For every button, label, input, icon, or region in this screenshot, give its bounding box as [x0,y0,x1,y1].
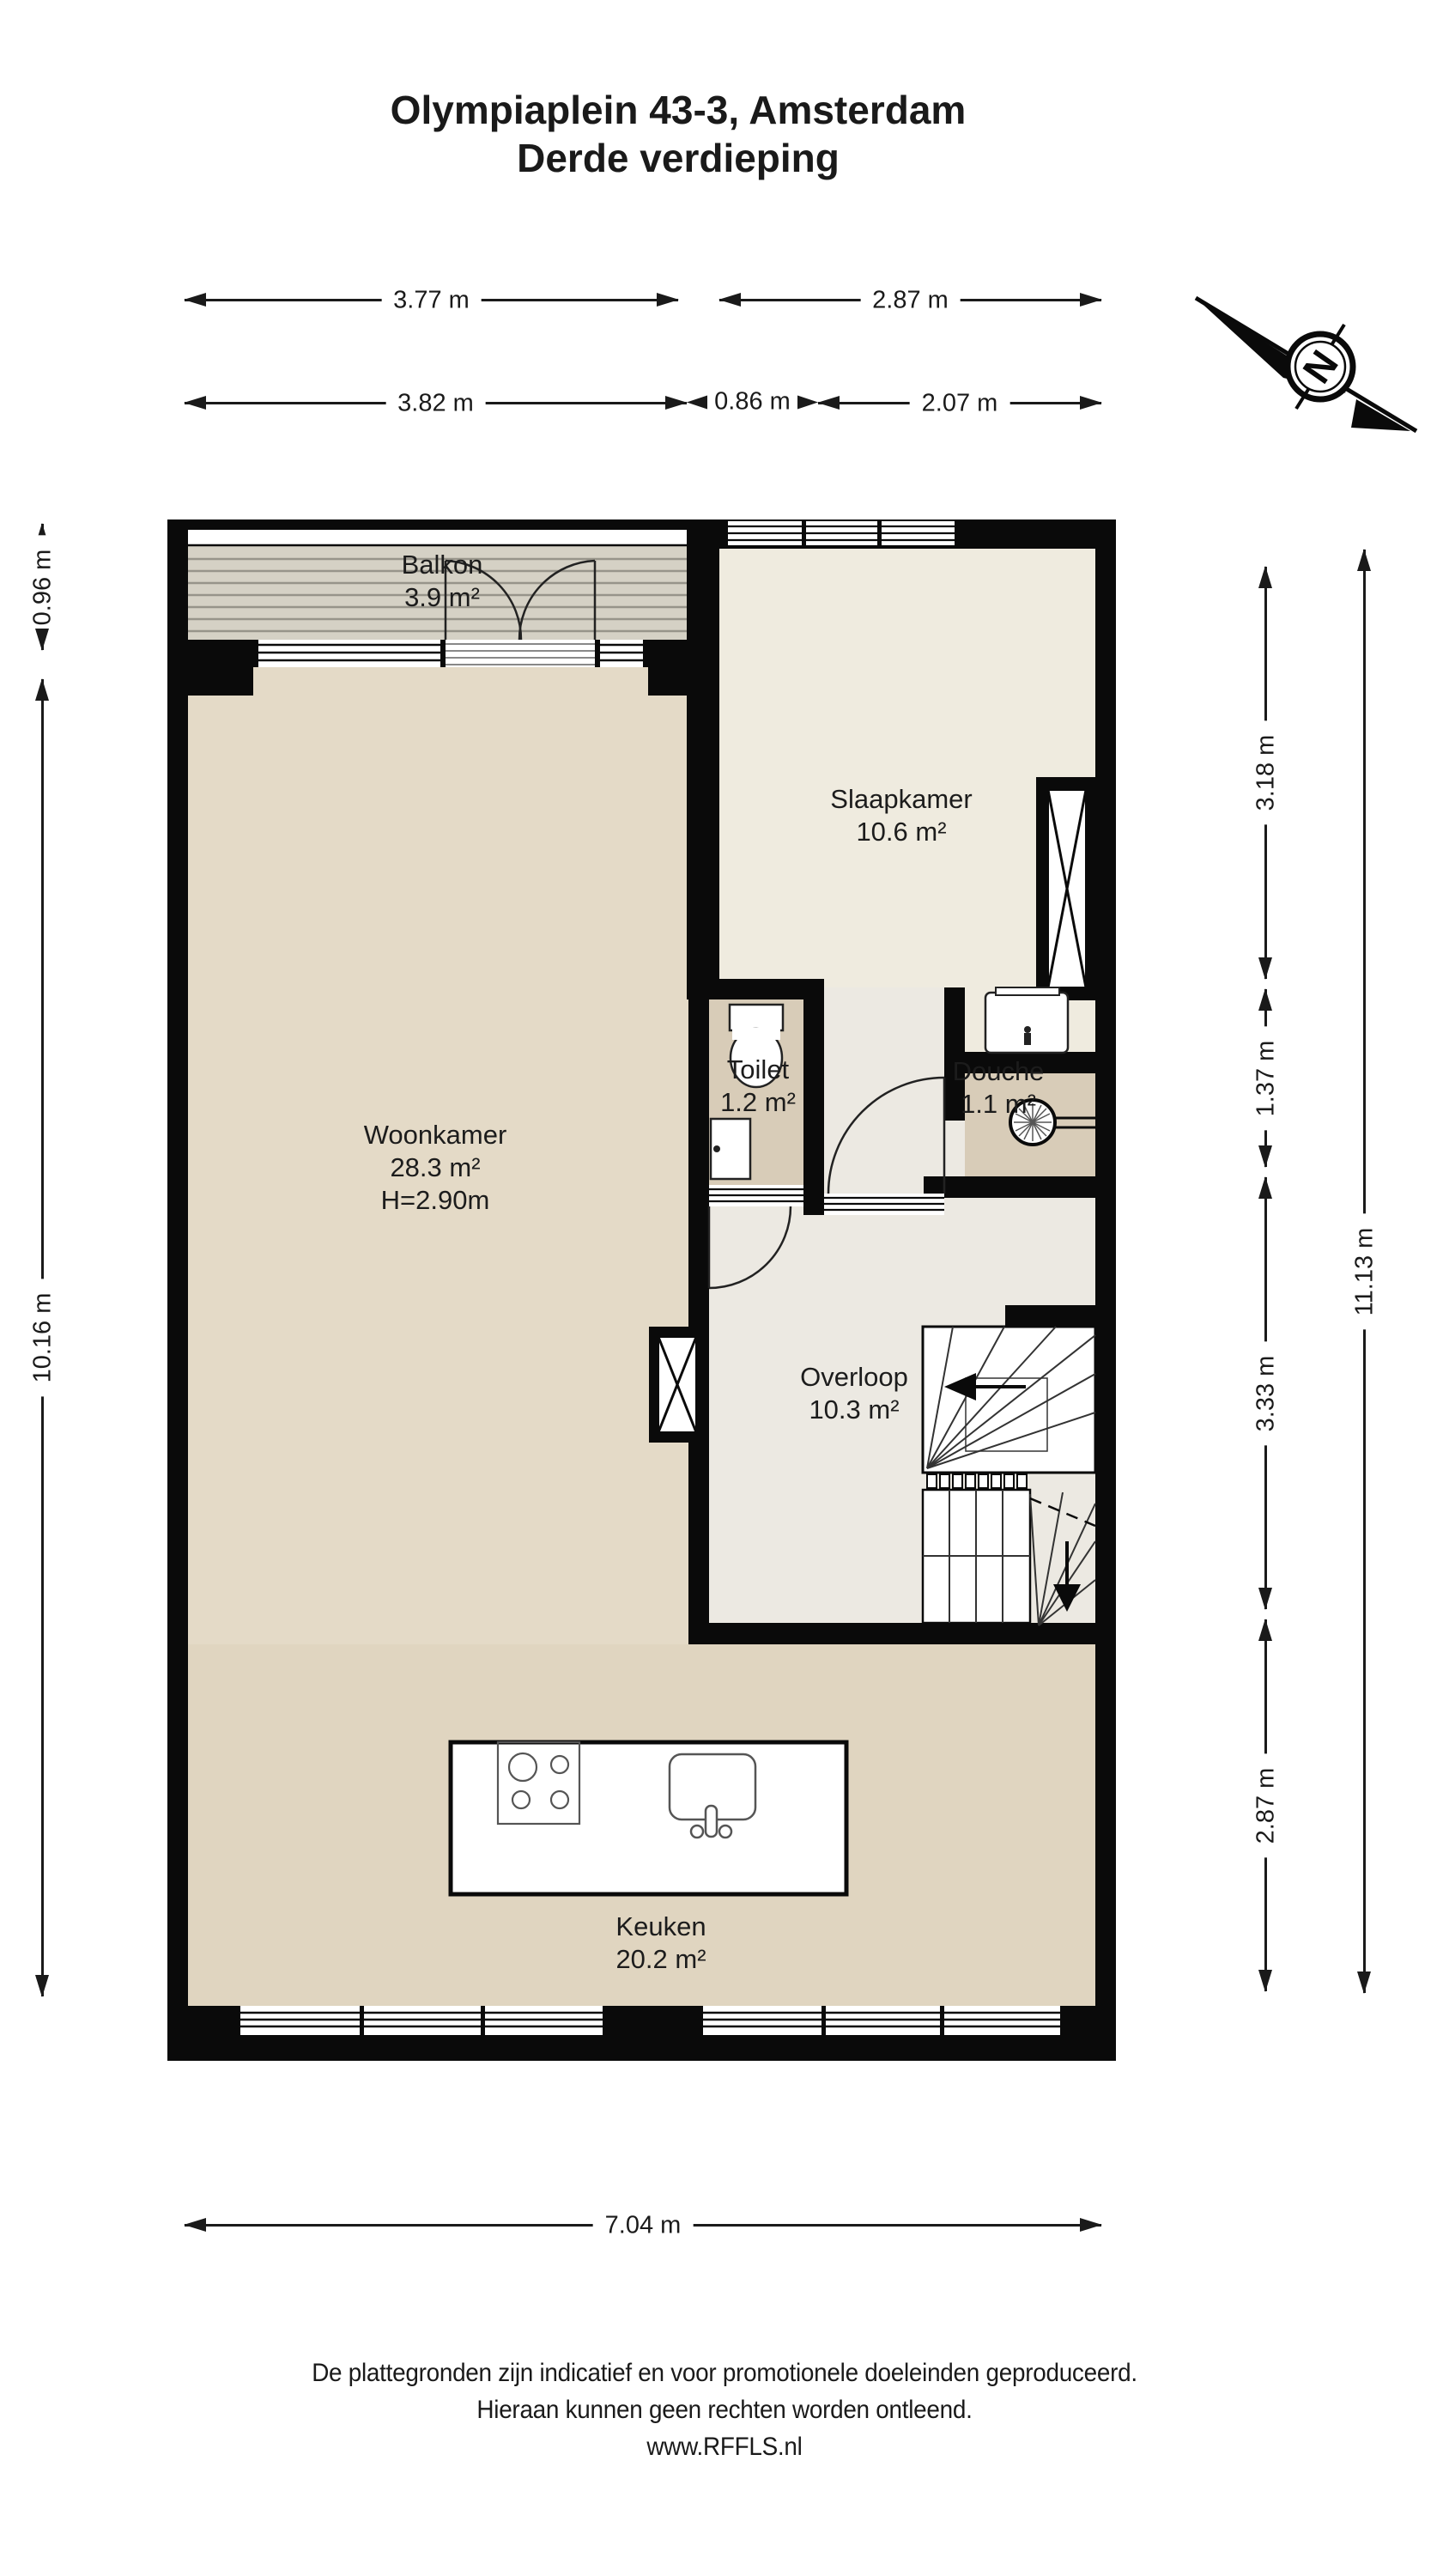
title-floor: Derde verdieping [0,134,1356,182]
dim-right-137: 1.37 m [1264,989,1267,1167]
dim-right-318: 3.18 m [1264,567,1267,979]
room-name: Douche [953,1055,1045,1088]
room-name: Overloop [800,1361,908,1394]
dim-label: 2.07 m [910,389,1010,417]
wall-woonkamer-slaapkamer [687,530,719,987]
dim-label: 10.16 m [28,1279,57,1397]
floorplan: Balkon 3.9 m² Slaapkamer 10.6 m² Woonkam… [167,519,1116,2061]
room-area: 10.6 m² [830,816,972,848]
disclaimer-line2: Hieraan kunnen geen rechten worden ontle… [51,2391,1398,2428]
dim-top-207: 2.07 m [818,402,1101,404]
label-douche: Douche 1.1 m² [953,1055,1045,1121]
wardrobe-icon [1048,790,1086,987]
keuken-windows [188,2006,1095,2040]
wall-outer-right [1095,519,1116,2061]
dim-label: 2.87 m [1252,1753,1280,1857]
dim-label: 11.13 m [1350,1213,1379,1329]
room-area: 20.2 m² [615,1943,706,1976]
wall-toilet-right [803,979,824,1215]
dim-left-1016: 10.16 m [41,679,44,1996]
disclaimer-line1: De plattegronden zijn indicatief en voor… [51,2354,1398,2391]
disclaimer: De plattegronden zijn indicatief en voor… [0,2354,1449,2465]
label-slaapkamer: Slaapkamer 10.6 m² [830,783,972,848]
label-woonkamer: Woonkamer 28.3 m² H=2.90m [364,1119,507,1217]
window-slaapkamer [728,521,955,545]
dim-top-086: 0.86 m [692,388,813,416]
label-toilet: Toilet 1.2 m² [720,1054,796,1119]
room-height: H=2.90m [364,1184,507,1217]
label-keuken: Keuken 20.2 m² [615,1911,706,1976]
dim-top-382: 3.82 m [185,402,687,404]
wall-overloop-bottom [688,1623,1116,1644]
dim-right-1113: 11.13 m [1363,550,1366,1993]
toilet-basin-icon [711,1119,750,1179]
dim-right-333: 3.33 m [1264,1177,1267,1609]
wall-toilet-left [688,999,709,1327]
dim-label: 1.37 m [1252,1026,1280,1130]
dim-label: 0.86 m [714,388,791,416]
title-address: Olympiaplein 43-3, Amsterdam [0,86,1356,134]
kitchen-island [451,1742,846,1894]
dim-right-287: 2.87 m [1264,1619,1267,1991]
dim-label: 3.77 m [381,286,482,314]
dim-top-287: 2.87 m [719,299,1101,301]
room-name: Woonkamer [364,1119,507,1151]
room-name: Keuken [615,1911,706,1943]
floorplan-drawing [167,519,1116,2061]
dim-label: 3.82 m [385,389,486,417]
arrow-left-icon [687,395,707,409]
stairs-lower-treads [923,1490,1030,1623]
room-area: 28.3 m² [364,1151,507,1184]
room-name: Slaapkamer [830,783,972,816]
dim-label: 3.18 m [1252,721,1280,825]
dim-left-096: 0.96 m [41,524,44,650]
room-name: Toilet [720,1054,796,1086]
disclaimer-url: www.RFFLS.nl [51,2428,1398,2465]
wall-woonkamer-overloop [688,1443,709,1644]
room-area: 10.3 m² [800,1394,908,1426]
dim-bottom-704: 7.04 m [185,2224,1101,2227]
dim-label: 3.33 m [1252,1341,1280,1445]
compass-needle-barb [1351,399,1410,431]
arrow-right-icon [797,395,818,409]
label-balkon: Balkon 3.9 m² [402,549,483,614]
room-area: 1.1 m² [953,1088,1045,1121]
dim-top-377: 3.77 m [185,299,678,301]
label-overloop: Overloop 10.3 m² [800,1361,908,1426]
washbasin-icon [985,987,1068,1053]
floorplan-page: Olympiaplein 43-3, Amsterdam Derde verdi… [0,0,1449,2576]
dim-label: 0.96 m [28,535,57,639]
room-area: 1.2 m² [720,1086,796,1119]
room-name: Balkon [402,549,483,581]
north-compass-icon: N [1183,276,1432,448]
wall-stairs-top-stub [1005,1305,1095,1327]
dim-label: 2.87 m [860,286,961,314]
wall-balcony-top [167,519,695,530]
shaft-icon [658,1337,696,1432]
wall-douche-bottom [924,1176,1095,1198]
page-title: Olympiaplein 43-3, Amsterdam Derde verdi… [0,86,1356,182]
balcony-railing [188,530,687,545]
dim-label: 7.04 m [593,2211,694,2239]
wall-balcony-right-pier [648,640,688,696]
room-area: 3.9 m² [402,581,483,614]
wall-balcony-left-pier [188,640,253,696]
wall-outer-left [167,519,188,2061]
